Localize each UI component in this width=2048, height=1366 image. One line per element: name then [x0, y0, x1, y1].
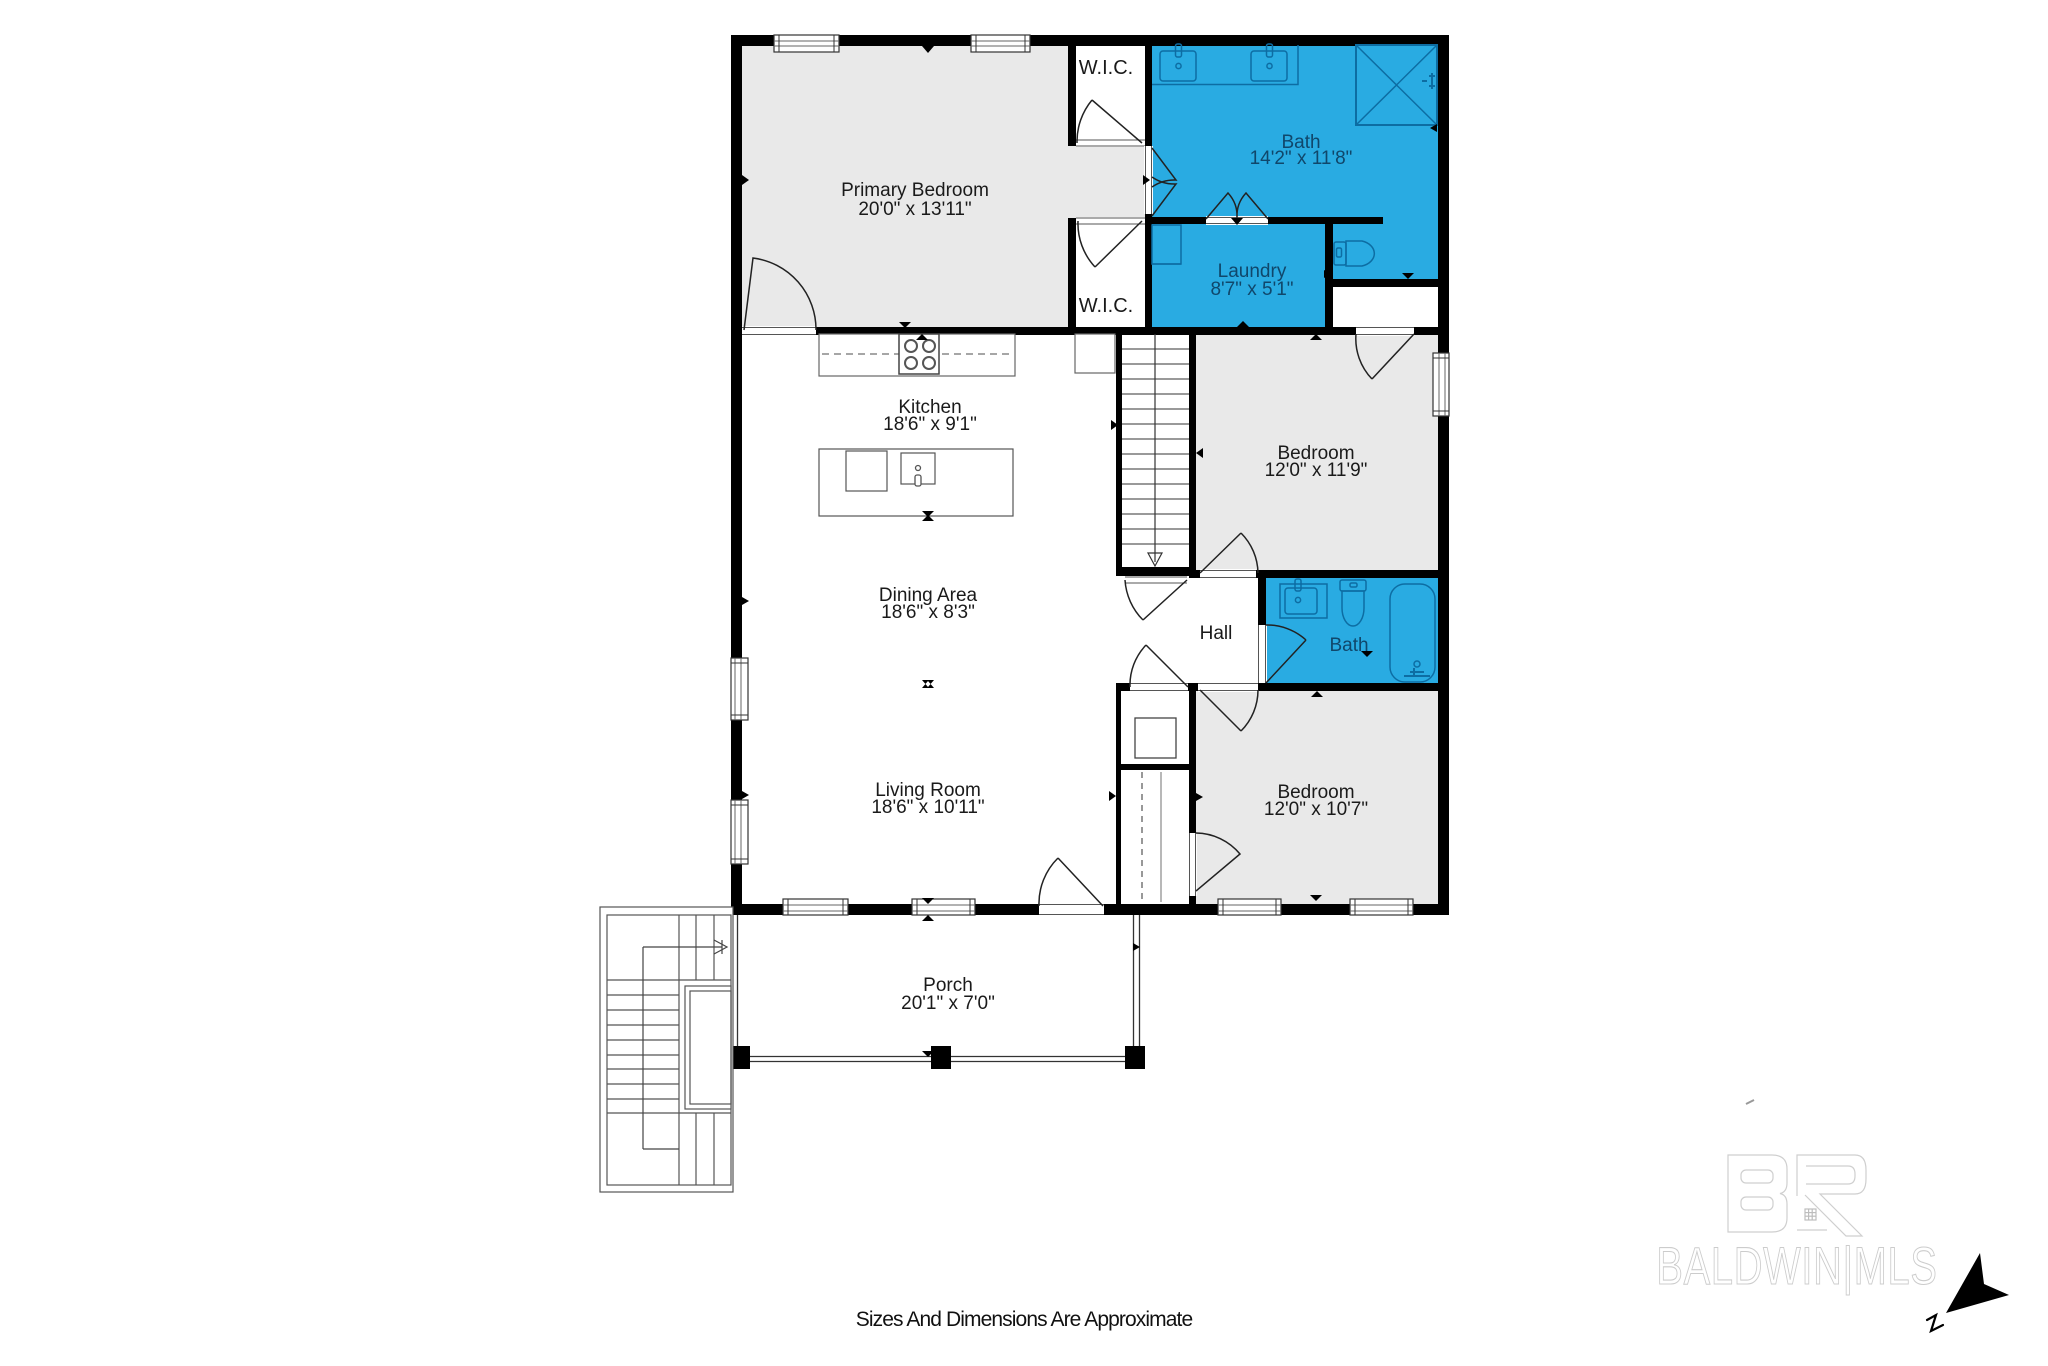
svg-text:W.I.C.: W.I.C.: [1079, 57, 1133, 79]
svg-text:18'6" x 9'1": 18'6" x 9'1": [883, 414, 977, 435]
svg-text:W.I.C.: W.I.C.: [1079, 295, 1133, 317]
svg-text:Sizes And Dimensions Are Appro: Sizes And Dimensions Are Approximate: [856, 1308, 1193, 1331]
svg-text:18'6" x 10'11": 18'6" x 10'11": [871, 797, 984, 818]
svg-text:20'0" x 13'11": 20'0" x 13'11": [858, 199, 971, 220]
svg-text:14'2" x 11'8": 14'2" x 11'8": [1250, 148, 1353, 169]
svg-text:18'6" x 8'3": 18'6" x 8'3": [881, 602, 975, 623]
svg-text:12'0" x 10'7": 12'0" x 10'7": [1264, 799, 1368, 820]
svg-text:20'1" x 7'0": 20'1" x 7'0": [901, 993, 995, 1014]
svg-text:Primary Bedroom: Primary Bedroom: [841, 180, 989, 201]
svg-text:Bath: Bath: [1329, 635, 1368, 656]
svg-text:8'7" x 5'1": 8'7" x 5'1": [1210, 279, 1293, 300]
svg-text:12'0" x 11'9": 12'0" x 11'9": [1265, 460, 1368, 481]
svg-text:BALDWIN|MLS: BALDWIN|MLS: [1656, 1236, 1937, 1295]
svg-text:Hall: Hall: [1200, 623, 1233, 644]
